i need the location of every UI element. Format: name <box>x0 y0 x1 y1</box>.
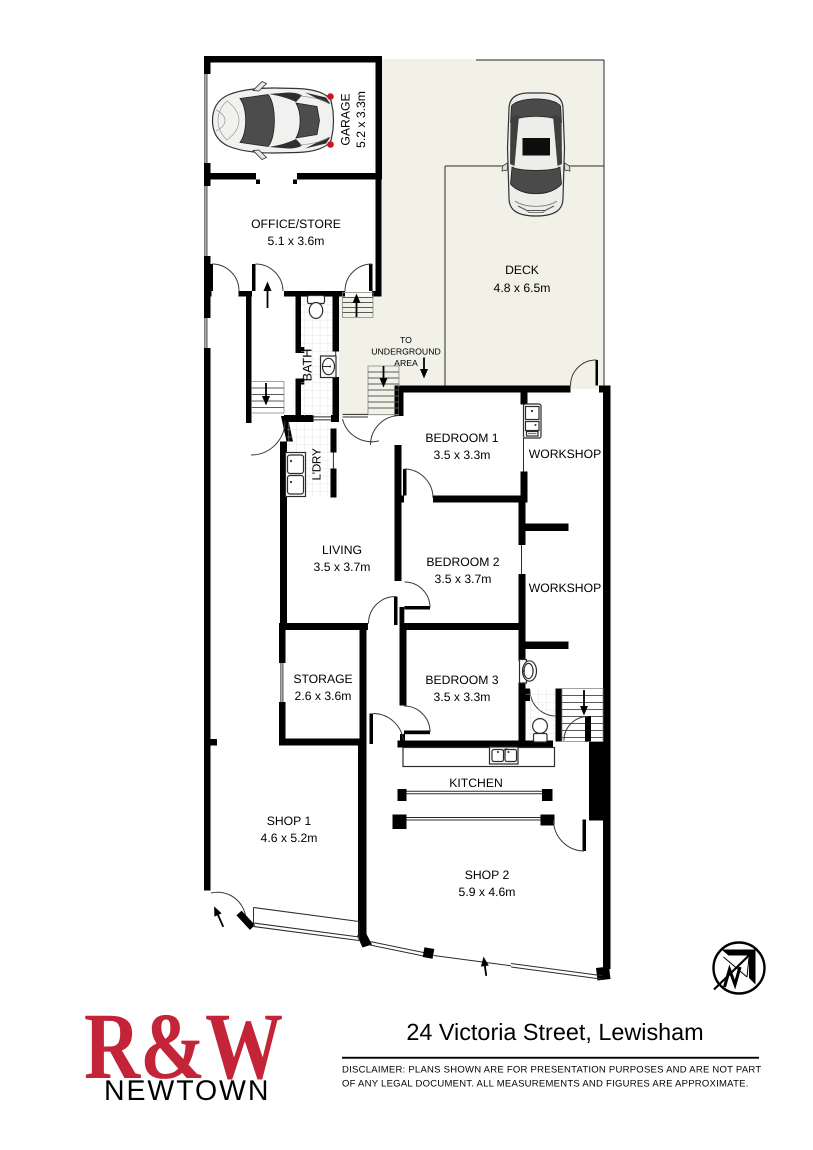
svg-text:3.5 x 3.3m: 3.5 x 3.3m <box>434 690 491 704</box>
svg-text:5.1 x 3.6m: 5.1 x 3.6m <box>268 234 325 248</box>
svg-text:OFFICE/STORE: OFFICE/STORE <box>251 217 341 231</box>
svg-text:DISCLAIMER: PLANS SHOWN ARE F: DISCLAIMER: PLANS SHOWN ARE FOR PRESENTA… <box>342 1065 761 1076</box>
svg-text:WORKSHOP: WORKSHOP <box>529 581 601 595</box>
svg-text:KITCHEN: KITCHEN <box>449 776 503 790</box>
svg-text:TO: TO <box>400 335 412 345</box>
svg-text:4.6 x 5.2m: 4.6 x 5.2m <box>261 831 318 845</box>
svg-text:24 Victoria Street, Lewisham: 24 Victoria Street, Lewisham <box>406 1019 703 1045</box>
svg-text:4.8 x 6.5m: 4.8 x 6.5m <box>494 281 551 295</box>
svg-text:GARAGE: GARAGE <box>339 93 353 145</box>
svg-text:3.5 x 3.3m: 3.5 x 3.3m <box>434 448 491 462</box>
svg-text:BEDROOM 3: BEDROOM 3 <box>425 673 498 687</box>
svg-text:BEDROOM 2: BEDROOM 2 <box>426 555 499 569</box>
svg-text:DECK: DECK <box>505 263 539 277</box>
svg-text:BEDROOM 1: BEDROOM 1 <box>425 431 498 445</box>
svg-text:3.5 x 3.7m: 3.5 x 3.7m <box>314 560 371 574</box>
svg-text:AREA: AREA <box>394 358 418 368</box>
svg-text:UNDERGROUND: UNDERGROUND <box>371 347 441 357</box>
svg-text:5.9 x 4.6m: 5.9 x 4.6m <box>459 885 516 899</box>
svg-text:LIVING: LIVING <box>322 543 362 557</box>
svg-text:3.5 x 3.7m: 3.5 x 3.7m <box>435 572 492 586</box>
svg-text:WORKSHOP: WORKSHOP <box>529 447 601 461</box>
svg-text:2.6 x 3.6m: 2.6 x 3.6m <box>295 689 352 703</box>
svg-text:BATH: BATH <box>301 349 315 382</box>
svg-text:OF ANY LEGAL DOCUMENT. ALL MEA: OF ANY LEGAL DOCUMENT. ALL MEASUREMENTS … <box>342 1079 749 1090</box>
svg-text:SHOP 1: SHOP 1 <box>267 814 312 828</box>
svg-text:NEWTOWN: NEWTOWN <box>104 1075 270 1107</box>
svg-text:L'DRY: L'DRY <box>310 448 324 480</box>
svg-text:5.2 x 3.3m: 5.2 x 3.3m <box>354 91 368 148</box>
svg-text:SHOP 2: SHOP 2 <box>465 868 510 882</box>
svg-text:STORAGE: STORAGE <box>293 672 352 686</box>
